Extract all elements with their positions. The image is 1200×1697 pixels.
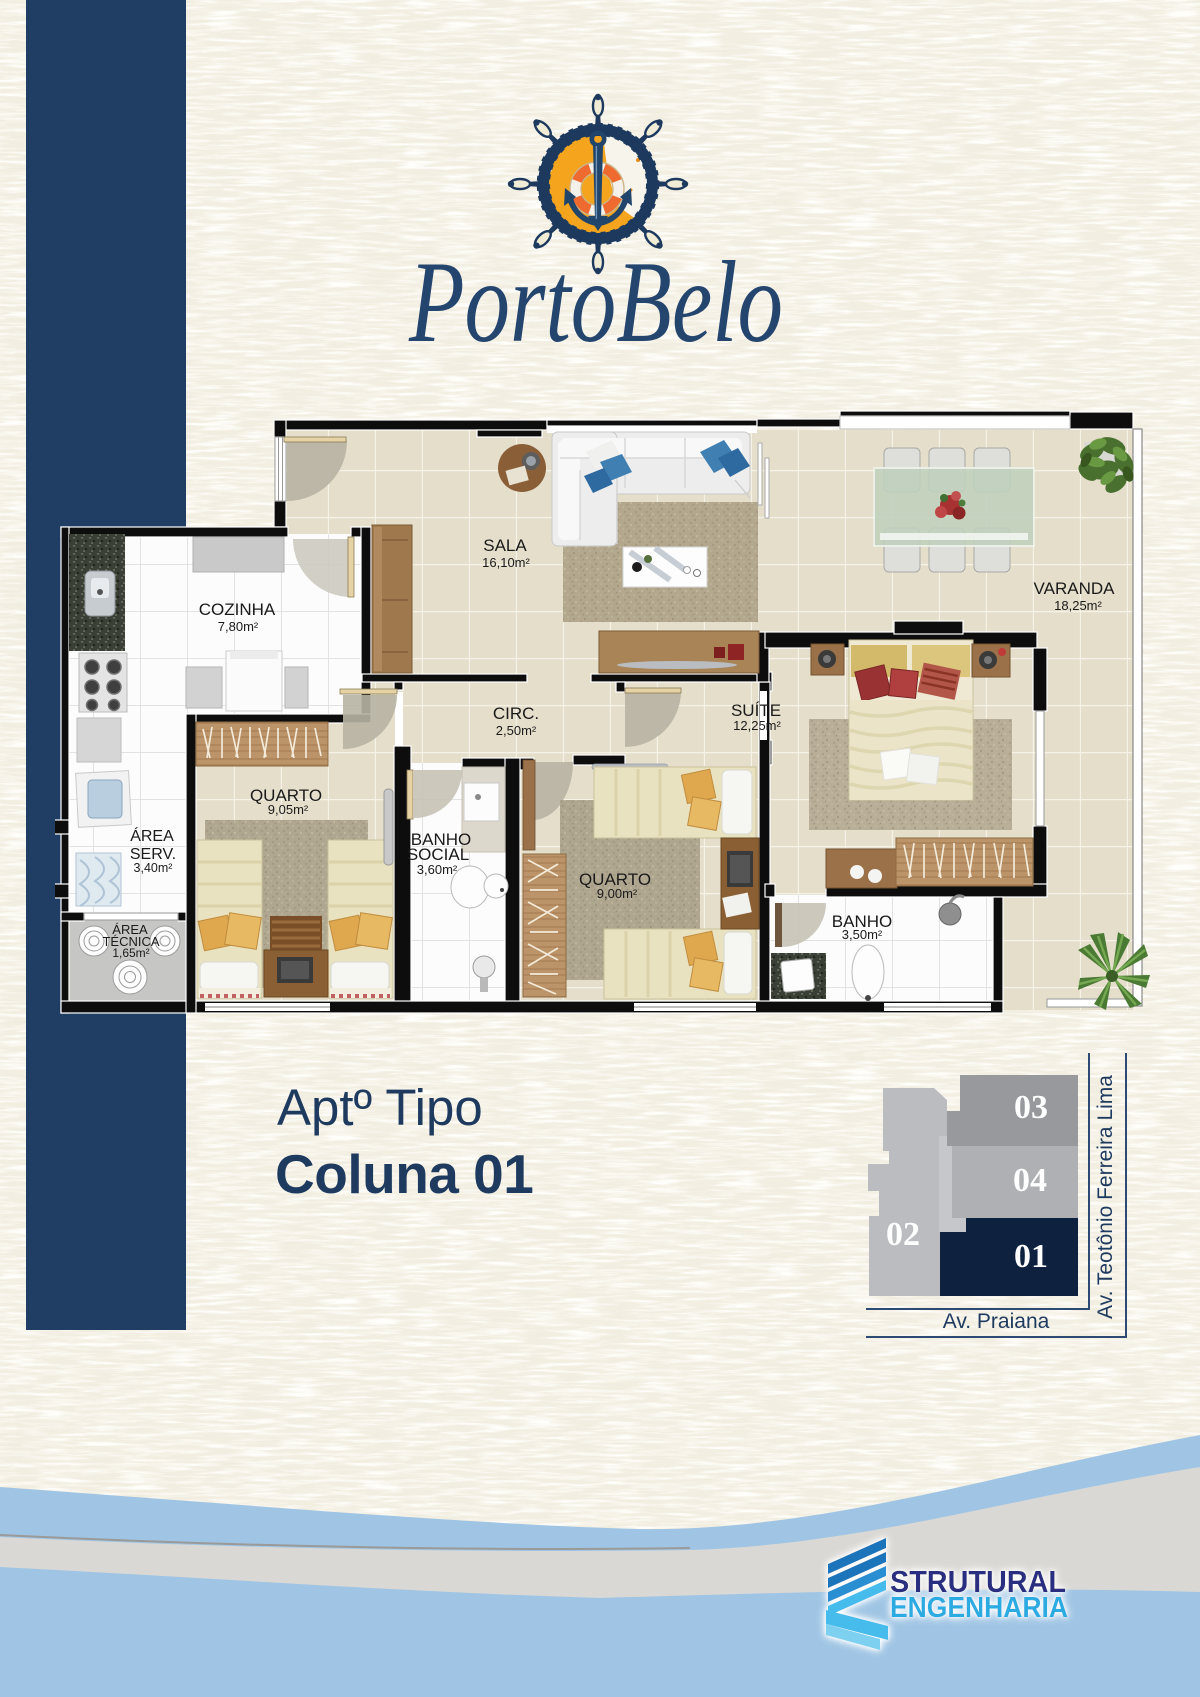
svg-text:03: 03 [1014, 1089, 1048, 1126]
svg-text:SALA: SALA [483, 536, 527, 555]
svg-text:VARANDA: VARANDA [1034, 579, 1116, 598]
svg-text:2,50m²: 2,50m² [496, 723, 537, 738]
svg-text:ENGENHARIA: ENGENHARIA [890, 1592, 1068, 1624]
svg-text:3,60m²: 3,60m² [417, 862, 458, 877]
svg-text:02: 02 [886, 1216, 920, 1253]
svg-text:9,00m²: 9,00m² [597, 886, 638, 901]
svg-text:12,25m²: 12,25m² [733, 718, 781, 733]
svg-text:9,05m²: 9,05m² [268, 802, 309, 817]
svg-text:Av. Teotônio Ferreira Lima: Av. Teotônio Ferreira Lima [1094, 1075, 1117, 1319]
svg-text:1,65m²: 1,65m² [112, 946, 149, 960]
svg-text:3,50m²: 3,50m² [842, 927, 883, 942]
svg-text:Av. Praiana: Av. Praiana [943, 1310, 1050, 1333]
svg-text:16,10m²: 16,10m² [482, 555, 530, 570]
svg-text:01: 01 [1014, 1238, 1048, 1275]
svg-text:CIRC.: CIRC. [493, 704, 539, 723]
svg-text:7,80m²: 7,80m² [218, 619, 259, 634]
svg-text:04: 04 [1013, 1162, 1047, 1199]
svg-text:ÁREA: ÁREA [130, 826, 174, 845]
svg-text:COZINHA: COZINHA [199, 600, 276, 619]
svg-text:3,40m²: 3,40m² [134, 861, 173, 875]
svg-text:18,25m²: 18,25m² [1054, 598, 1102, 613]
